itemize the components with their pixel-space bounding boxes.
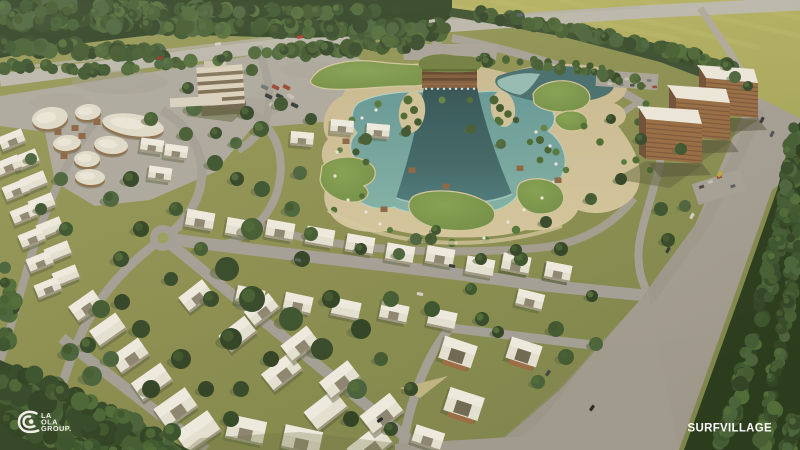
svg-text:GROUP.: GROUP. xyxy=(41,424,72,433)
svg-text:SURFVILLAGE: SURFVILLAGE xyxy=(688,423,772,435)
